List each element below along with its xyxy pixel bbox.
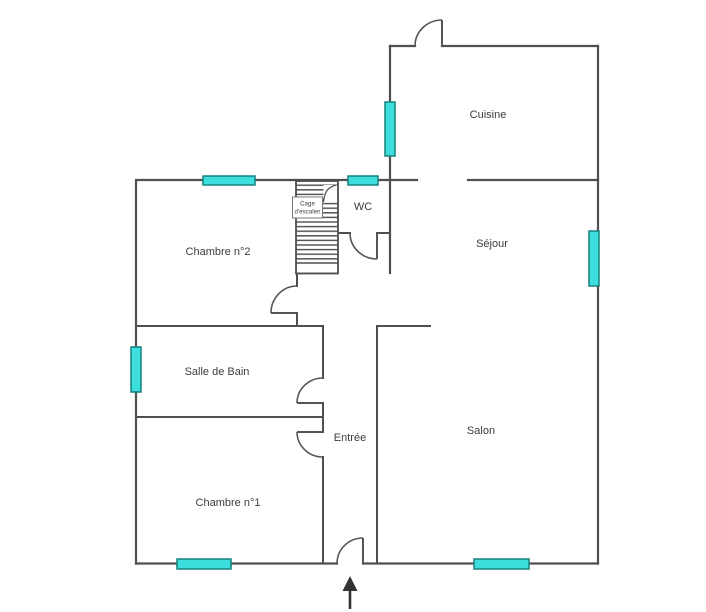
room-label-entree: Entrée (334, 432, 366, 444)
floor-plan-page: Cage d'escalier Cuisine Séjour WC Chambr… (0, 0, 706, 612)
floor-plan: Cage d'escalier Cuisine Séjour WC Chambr… (0, 0, 706, 612)
room-label-sejour: Séjour (476, 238, 508, 250)
staircase-landing (297, 264, 337, 273)
plan-background (0, 0, 706, 612)
staircase: Cage d'escalier (293, 181, 339, 274)
window-cuisine-left (385, 102, 395, 156)
room-label-wc: WC (354, 201, 372, 213)
stair-label-line2: d'escalier (295, 209, 321, 216)
room-label-salledebain: Salle de Bain (185, 366, 250, 378)
window-sejour-right (589, 231, 599, 286)
room-label-chambre1: Chambre n°1 (196, 497, 261, 509)
window-salledebain-left (131, 347, 141, 392)
window-wc-top (348, 176, 378, 185)
window-chambre1-bottom (177, 559, 231, 569)
window-salon-bottom (474, 559, 529, 569)
stair-label-line1: Cage (300, 201, 315, 208)
room-label-salon: Salon (467, 425, 495, 437)
room-label-cuisine: Cuisine (470, 109, 507, 121)
room-label-chambre2: Chambre n°2 (186, 246, 251, 258)
window-chambre2-top (203, 176, 255, 185)
